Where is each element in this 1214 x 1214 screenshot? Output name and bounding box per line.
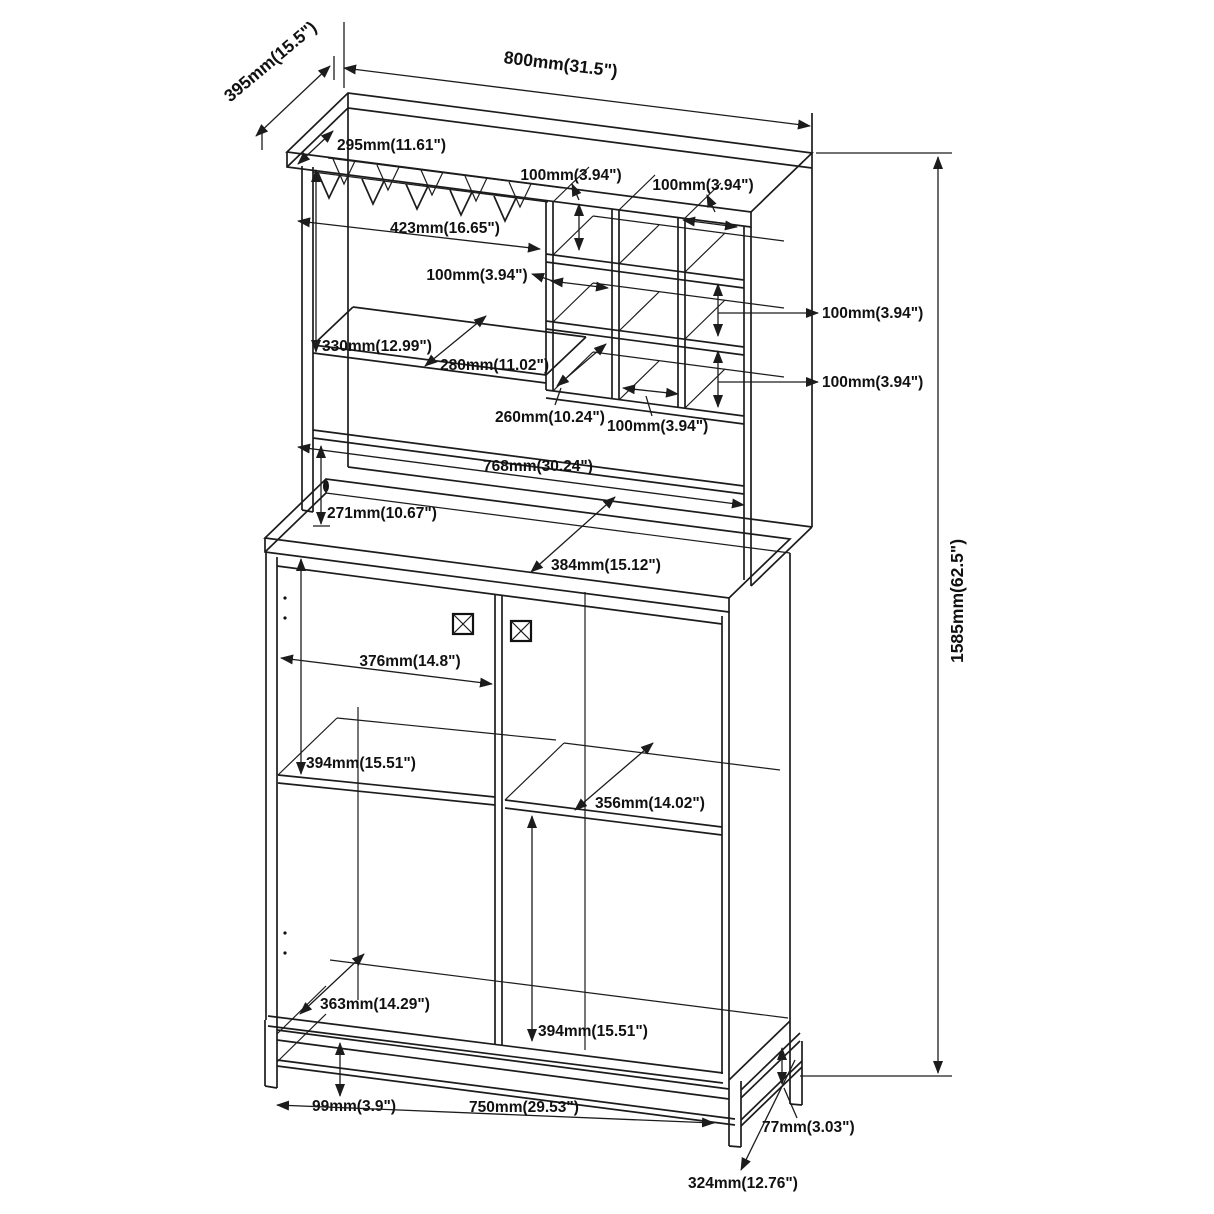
dim-base-side-depth-label: 324mm(12.76") bbox=[688, 1175, 798, 1192]
dim-overall-height-label: 1585mm(62.5") bbox=[947, 539, 967, 663]
dim-lower-compartment-height: 394mm(15.51") bbox=[532, 816, 648, 1041]
dim-base-bar-height-label: 77mm(3.03") bbox=[762, 1119, 855, 1136]
dim-cubby-col-bottom-label: 100mm(3.94") bbox=[607, 418, 708, 435]
dim-hutch-inner-width: 768mm(30.24") bbox=[298, 447, 744, 505]
dim-right-shelf-depth: 356mm(14.02") bbox=[575, 743, 705, 812]
right-door-knob-icon bbox=[511, 621, 531, 641]
dim-cubby-depth-label: 260mm(10.24") bbox=[495, 409, 605, 426]
dim-door-width: 376mm(14.8") bbox=[281, 653, 492, 684]
dim-cubby-col-bottom: 100mm(3.94") bbox=[607, 388, 708, 435]
dim-left-shelf-depth-label: 280mm(11.02") bbox=[440, 357, 549, 374]
dim-open-shelf-height-label: 271mm(10.67") bbox=[327, 505, 437, 522]
door-knobs bbox=[453, 614, 531, 641]
dim-upper-compartment-height-label: 394mm(15.51") bbox=[306, 755, 416, 772]
dim-glass-rack-width-label: 423mm(16.65") bbox=[390, 220, 500, 237]
dim-cubby-col-mid: 100mm(3.94") bbox=[426, 267, 608, 288]
dim-cubby-row2-label: 100mm(3.94") bbox=[822, 305, 923, 322]
diagram-canvas: 395mm(15.5") 800mm(31.5") 295mm(11.61") … bbox=[0, 0, 1214, 1214]
dim-hutch-inner-width-label: 768mm(30.24") bbox=[483, 458, 593, 475]
dim-bottom-compartment-depth: 363mm(14.29") bbox=[300, 954, 430, 1014]
dim-overall-height: 1585mm(62.5") bbox=[800, 153, 967, 1076]
dim-door-width-label: 376mm(14.8") bbox=[359, 653, 460, 670]
dim-cubby-col-top-right-label: 100mm(3.94") bbox=[652, 177, 753, 194]
top-panel bbox=[287, 93, 812, 227]
counter-top bbox=[265, 479, 790, 612]
cabinet-dimension-diagram: 395mm(15.5") 800mm(31.5") 295mm(11.61") … bbox=[0, 0, 1214, 1214]
dim-top-depth-label: 395mm(15.5") bbox=[220, 17, 320, 106]
dim-left-shelf-height: 330mm(12.99") bbox=[316, 170, 432, 355]
dim-top-width-label: 800mm(31.5") bbox=[503, 47, 619, 81]
dim-right-shelf-depth-label: 356mm(14.02") bbox=[595, 795, 705, 812]
dim-counter-depth-label: 384mm(15.12") bbox=[551, 557, 661, 574]
dim-cubby-row2: 100mm(3.94") bbox=[718, 284, 923, 336]
left-door-knob-icon bbox=[453, 614, 473, 634]
dim-hutch-top-depth-label: 295mm(11.61") bbox=[337, 137, 446, 154]
dim-top-width: 800mm(31.5") bbox=[344, 22, 810, 126]
lower-cabinet bbox=[266, 493, 790, 1083]
dim-lower-compartment-height-label: 394mm(15.51") bbox=[538, 1023, 648, 1040]
dim-cubby-row1-label: 100mm(3.94") bbox=[520, 167, 621, 184]
dim-cubby-row3-label: 100mm(3.94") bbox=[822, 374, 923, 391]
dim-base-width-label: 750mm(29.53") bbox=[469, 1099, 579, 1116]
dim-cubby-row3: 100mm(3.94") bbox=[718, 351, 923, 407]
dim-left-shelf-height-label: 330mm(12.99") bbox=[322, 338, 432, 355]
dim-glass-rack-width: 423mm(16.65") bbox=[298, 220, 540, 249]
dim-bottom-compartment-depth-label: 363mm(14.29") bbox=[320, 996, 430, 1013]
dim-top-depth: 395mm(15.5") bbox=[220, 17, 334, 150]
dim-cubby-col-mid-label: 100mm(3.94") bbox=[426, 267, 527, 284]
